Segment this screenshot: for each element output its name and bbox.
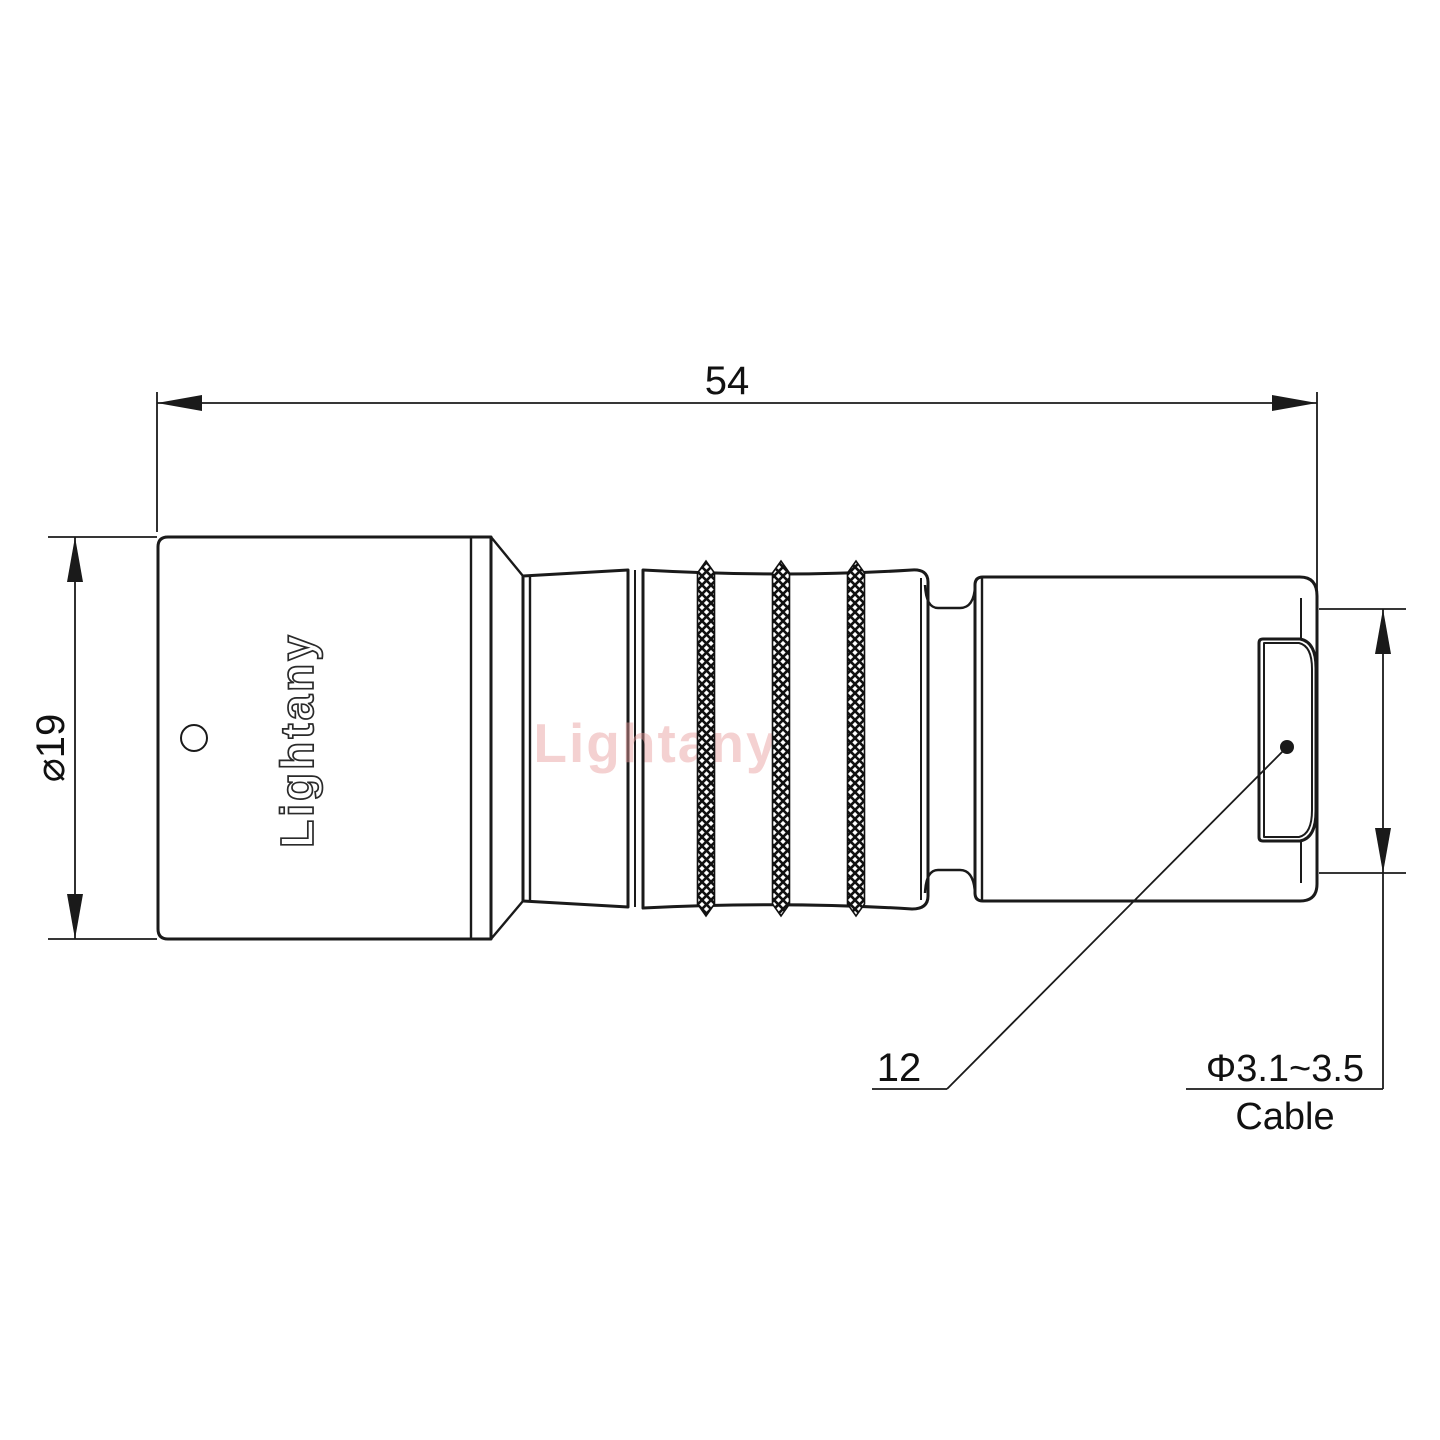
cone-edges [491, 537, 523, 939]
connector-body: Lightany Lightany [158, 537, 1317, 939]
neck-bottom-edge [925, 870, 975, 894]
dim-value-dia19: ⌀19 [29, 714, 73, 783]
arrowhead-bottom [1375, 828, 1391, 873]
technical-drawing-page: Lightany Lightany [0, 0, 1440, 1440]
knurl-band-3 [848, 561, 865, 916]
dim-left-diameter: ⌀19 [29, 537, 157, 939]
cable-diameter-text: Φ3.1~3.5 [1206, 1048, 1364, 1090]
arrowhead-right [1272, 395, 1317, 411]
leader-value-text: 12 [877, 1046, 922, 1090]
rear-body [975, 577, 1317, 901]
knurl-band-1 [698, 561, 715, 916]
arrowhead-left [157, 395, 202, 411]
arrowhead-top [67, 537, 83, 582]
neck [925, 585, 975, 894]
front-sleeve: Lightany [158, 537, 491, 939]
connector-drawing: Lightany Lightany [0, 0, 1440, 1440]
dim-value-54: 54 [705, 359, 750, 403]
cable-word-text: Cable [1235, 1096, 1334, 1138]
arrowhead-bottom [67, 894, 83, 939]
arrowhead-top [1375, 609, 1391, 654]
body-engraving-text: Lightany [271, 632, 323, 848]
watermark-text: Lightany [533, 712, 778, 774]
cone-transition [491, 537, 523, 939]
knurl-band-2 [773, 561, 790, 916]
neck-top-edge [925, 585, 975, 608]
cable-bushing-outline [1259, 639, 1316, 841]
